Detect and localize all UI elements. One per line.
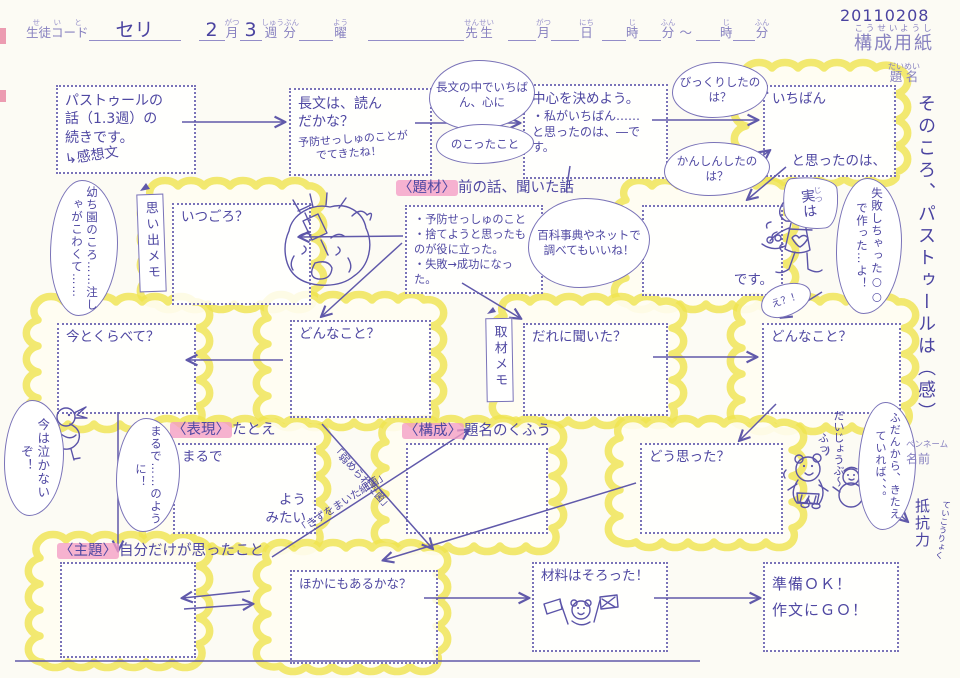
speech-bubble-kindergarten: 幼ち園のころ……注しゃがこわくて…… [50, 180, 118, 316]
box-text-line: ・私がいちばん…… [532, 109, 659, 125]
box-kousei [406, 443, 548, 534]
box-what-right: どんなこと？ [762, 323, 901, 414]
time-day-label: 日にち [579, 18, 594, 41]
box-who-asked: だれに聞いた？ [523, 323, 668, 416]
box-compare-now: 今とくらべて？ [57, 323, 196, 414]
note-daijoubu: だいじょうぶ～ [830, 410, 846, 487]
tag-kousei: 〈構成〉題名のくふう [402, 419, 551, 440]
box-text-line: です。 [734, 272, 773, 290]
box-materials: 材料はそろった！ [532, 562, 668, 652]
speech-bubble-encyclopedia: 百科事典やネットで調べてもいいね！ [528, 198, 650, 288]
box-text-line: いつごろ？ [181, 209, 249, 227]
box-text-line: 材料はそろった！ [541, 568, 649, 586]
time-hour2-label: 時じ [720, 18, 733, 41]
box-simile: まるで ようみたい [173, 443, 316, 534]
margin-title-written: そのころ、パストゥールは（感） [912, 94, 938, 450]
pencil-icon [140, 183, 150, 191]
box-text-line: 長文は、読ん [298, 95, 423, 113]
time-hour-field [602, 16, 626, 41]
box-text-line: 準備ＯＫ！ [772, 575, 890, 595]
box-text-line: 今とくらべて？ [66, 329, 160, 347]
memory-memo-banner: 思い出メモ [136, 194, 166, 293]
flow-arrow [300, 236, 403, 237]
written-date: 20110208 [840, 6, 929, 25]
margin-penname: ペンネーム 名前 [906, 438, 948, 467]
box-ichiban: いちばん と思ったのは、 [763, 85, 896, 177]
pencil-icon [487, 307, 496, 314]
scan-edge-mark [0, 90, 6, 102]
box-ready: 準備ＯＫ！ 作文にＧＯ！ [763, 562, 899, 652]
box-text-line: ほかにもあるかな？ [299, 576, 412, 593]
tag-daizai: 〈題材〉前の話、聞いた話 [396, 176, 574, 197]
weekday-field [299, 16, 333, 41]
speech-bubble-simile-example: まるで……のように！ [116, 418, 180, 532]
speech-bubble-most-memorable: 長文の中でいちばん、心に [429, 60, 535, 130]
time-month-field [508, 16, 536, 41]
box-text-line: ・捨てようと思ったも [414, 227, 534, 242]
worksheet-page: 生徒コードせいと セリ 2 月がつ 3 週分しゅうぶん 曜よう 先生せんせい 月… [0, 0, 960, 678]
box-text-line: と思ったのは、 [792, 153, 887, 171]
box-text-line: いちばん [772, 91, 826, 109]
box-note: ↳感想文 [64, 144, 120, 170]
header-row: 生徒コードせいと セリ 2 月がつ 3 週分しゅうぶん 曜よう 先生せんせい 月… [26, 16, 770, 41]
box-text-line: どんなこと？ [299, 326, 380, 344]
box-text-line: 話（1.3週）の [65, 110, 187, 128]
sheet-title: 構成用紙こうせいようし [854, 24, 934, 55]
box-text-line: パストゥールの [65, 92, 187, 110]
speech-bubble-actually: 実じつは [780, 173, 842, 233]
student-code-field: セリ [89, 16, 181, 41]
box-start: パストゥールの 話（1.3週）の 続きです。 ↳感想文 [56, 85, 196, 174]
box-how-felt: どう思った？ [640, 443, 783, 534]
tag-shudai: 〈主題〉自分だけが思ったこと [57, 539, 264, 560]
time-minute2-field [733, 16, 755, 41]
research-memo-banner: 取材メモ [485, 318, 513, 402]
box-text-line: ・予防せっしゅのこと [414, 212, 534, 227]
box-when: いつごろ？ [172, 203, 311, 305]
margin-title-label: 題名だいめい [888, 62, 920, 85]
time-day-field [551, 16, 579, 41]
penname-label: ペンネーム [906, 438, 948, 450]
time-hour-label: 時じ [626, 18, 639, 41]
student-code-value: セリ [114, 21, 156, 40]
box-what-left: どんなこと？ [290, 320, 431, 418]
box-center: 中心を決めよう。 ・私がいちばん…… と思ったのは、―です。 [523, 84, 668, 179]
tilde: ～ [680, 22, 693, 41]
box-text-line: よう [266, 492, 307, 510]
week-label: 週分しゅうぶん [262, 18, 300, 41]
box-memo-list: ・予防せっしゅのこと ・捨てようと思ったも のが役に立った。 ・失敗→成功になっ… [405, 205, 543, 294]
box-anything-else: ほかにもあるかな？ [290, 570, 438, 664]
scan-edge-mark [0, 28, 6, 44]
month-field: 2 [199, 16, 225, 41]
speech-bubble-failure-story: 失敗しちゃった○○で作った…よ！ [836, 178, 902, 314]
month-value: 2 [203, 21, 219, 40]
margin-resistance-furigana: ていこうりょく [932, 499, 952, 560]
box-text-line: と思ったのは、―です。 [532, 125, 659, 157]
time-hour2-field [696, 16, 720, 41]
month-label: 月がつ [225, 18, 240, 41]
box-text-line: どう思った？ [649, 449, 730, 467]
box-read-check: 長文は、読ん だかな？ 予防せっしゅのことが でてきたね！ [289, 88, 432, 176]
box-shudai [60, 562, 196, 658]
weekday-label: 曜よう [333, 18, 348, 41]
box-desu: です。 [642, 205, 783, 296]
flow-arrow [322, 243, 402, 316]
week-value: 3 [242, 21, 258, 40]
time-month-label: 月がつ [536, 18, 551, 41]
time-minute2-label: 分ふん [755, 18, 770, 41]
bear-and-snowman-doodle [784, 447, 869, 509]
time-minute-field [639, 16, 661, 41]
speech-bubble-surprised: びっくりしたのは？ [672, 62, 768, 118]
box-text-line: 中心を決めよう。 [532, 91, 659, 109]
note-fu: ふっ [813, 431, 832, 455]
margin-resistance: 抵抗力 [912, 498, 933, 549]
box-text-line: どんなこと？ [771, 329, 852, 347]
box-text-line: だれに聞いた？ [532, 329, 627, 347]
teacher-label: 先生せんせい [464, 18, 494, 41]
teacher-field [368, 16, 464, 41]
student-code-label: 生徒コードせいと [26, 18, 89, 41]
speech-bubble-impressed: かんしんしたのは？ [664, 142, 770, 196]
box-text-line: のが役に立った。 [414, 242, 534, 257]
speech-bubble-wont-cry: 今は泣かないぞ！ [4, 400, 64, 516]
time-minute-label: 分ふん [661, 18, 676, 41]
tag-hyougen: 〈表現〉たとえ [170, 418, 276, 439]
speech-bubble-most-memorable-2: のこったこと [436, 124, 534, 164]
box-text-line: まるで [182, 449, 223, 467]
name-label: 名前 [906, 450, 948, 467]
box-text-line: ・失敗→成功になった。 [414, 257, 534, 287]
box-text-line: 続きです。 [65, 130, 134, 146]
box-text-line: 作文にＧＯ！ [772, 601, 890, 621]
week-field: 3 [240, 16, 262, 41]
